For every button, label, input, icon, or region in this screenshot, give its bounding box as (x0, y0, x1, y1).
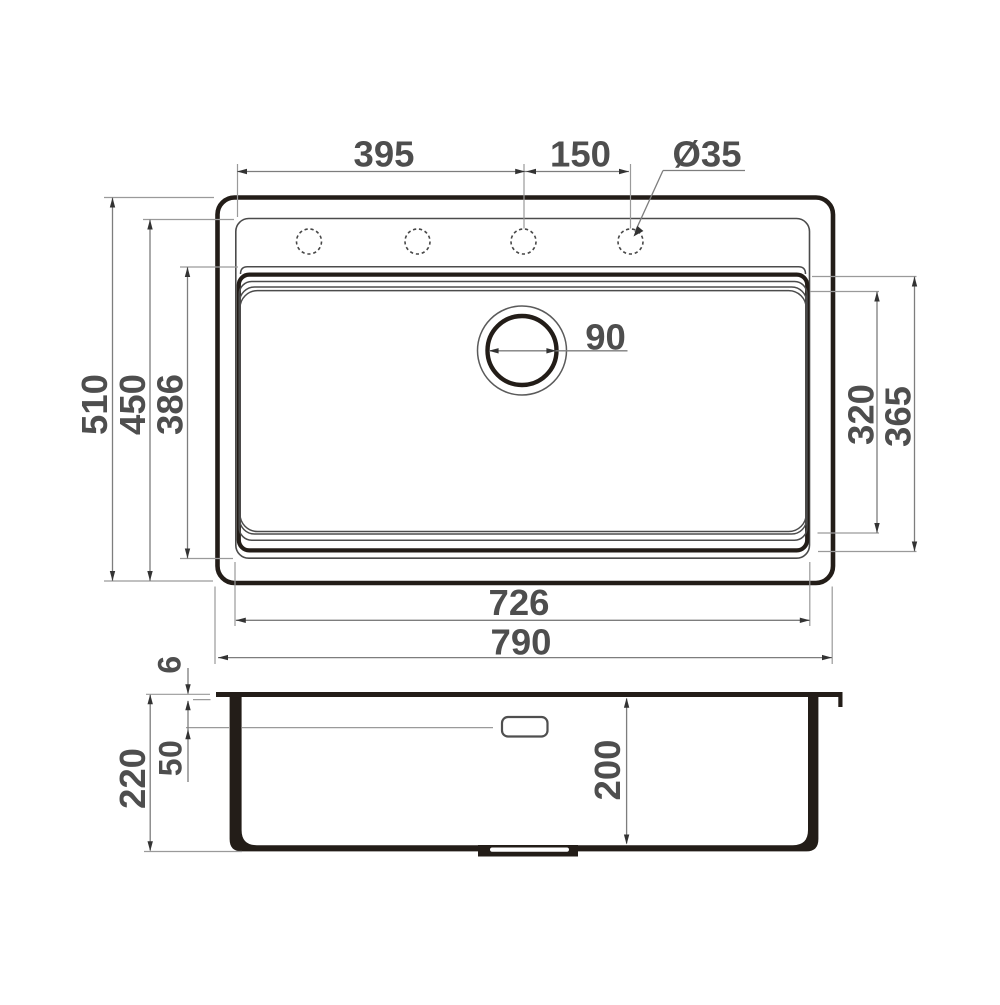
svg-text:320: 320 (841, 384, 882, 445)
svg-text:395: 395 (354, 134, 415, 175)
svg-text:365: 365 (878, 386, 919, 447)
svg-text:150: 150 (550, 134, 611, 175)
svg-text:510: 510 (74, 374, 115, 435)
svg-text:50: 50 (152, 740, 188, 777)
svg-text:90: 90 (585, 317, 626, 358)
svg-text:726: 726 (489, 582, 550, 623)
svg-text:386: 386 (150, 374, 191, 435)
svg-text:6: 6 (151, 655, 187, 673)
svg-text:200: 200 (587, 740, 628, 801)
svg-text:450: 450 (112, 374, 153, 435)
svg-text:Ø35: Ø35 (673, 134, 742, 175)
svg-text:790: 790 (491, 621, 552, 662)
svg-text:220: 220 (112, 748, 153, 809)
